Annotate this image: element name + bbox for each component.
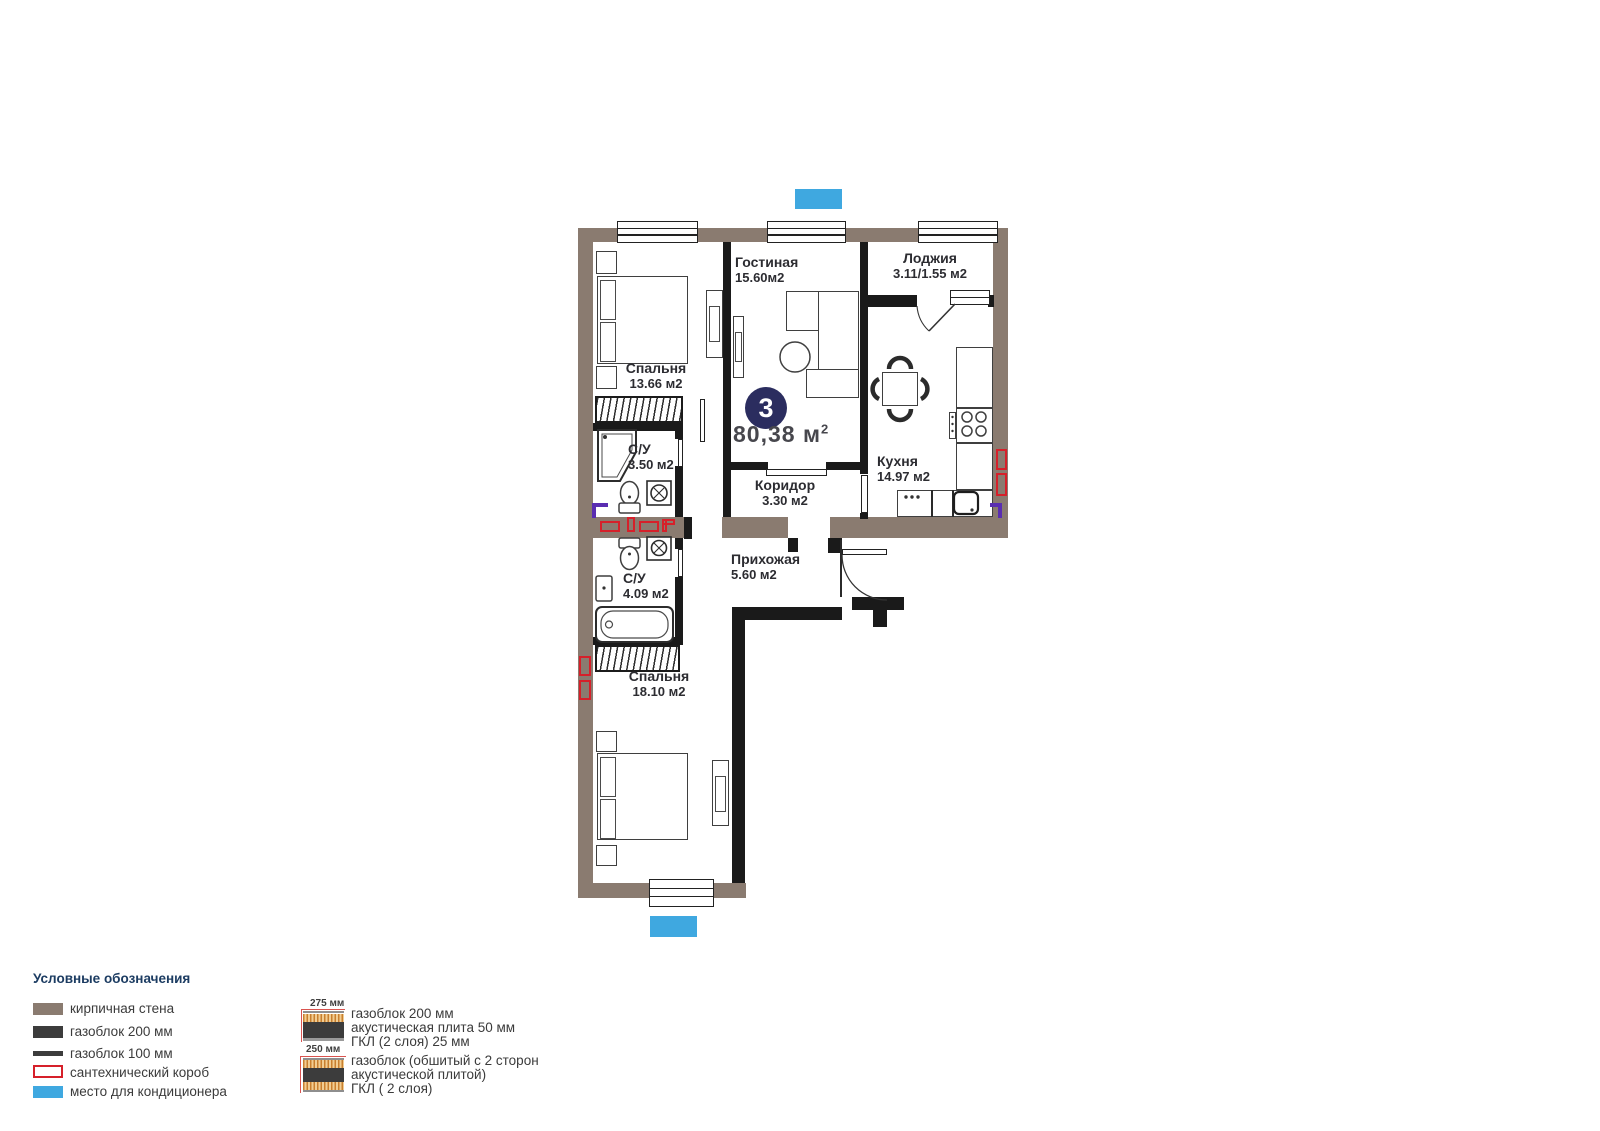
wall-block-jamb-1 [684,517,692,539]
legend-item-label: сантехнический короб [70,1065,209,1080]
washing-machine-symbol [647,537,671,560]
kitchen-counter [956,347,993,408]
legend-title: Условные обозначения [33,971,190,986]
wall-type-line: газоблок 200 мм [351,1006,454,1021]
room-label-bath1: С/У 3.50 м2 [628,441,674,473]
wardrobe-symbol [709,306,720,342]
wall-block-living-kitchen2 [860,513,868,519]
legend-swatch-brick [33,1003,63,1015]
nightstand-symbol [596,731,617,752]
door-leaf [678,439,683,467]
entrance-door-leaf [842,549,887,555]
room-name: Прихожая [731,551,800,567]
room-name: Коридор [743,477,827,493]
room-label-hall: Прихожая 5.60 м2 [731,551,800,583]
window [767,221,846,243]
wall-brick-left [578,228,593,898]
wall-brick-band-c [830,517,1008,538]
counter-divider [952,490,954,517]
wall-block-living-kitchen [860,242,868,474]
pillow-symbol [600,322,616,362]
room-name: Кухня [877,453,930,469]
bathtub-drain [606,621,613,628]
wall-block-bath2-right-a [675,538,683,549]
wall-type-swatch-275 [303,1011,344,1041]
wardrobe-hatch-symbol [595,396,683,423]
room-label-loggia: Лоджия 3.11/1.55 м2 [880,250,980,282]
floor-plan-page: Гостиная 15.60м2 Лоджия 3.11/1.55 м2 Спа… [0,0,1600,1131]
door-leaf [678,549,683,577]
wall-block-jamb-2 [788,538,798,552]
sanitary-box-marker [579,680,591,700]
loggia-door-swing [917,304,955,331]
legend-item-label: газоблок 200 мм [70,1024,173,1039]
room-label-bath2: С/У 4.09 м2 [623,570,669,602]
wall-block-bath1-right-b [675,466,683,517]
door-leaf [700,399,705,442]
window [649,879,714,907]
room-name: С/У [623,570,669,586]
shower-drain [603,435,607,439]
wall-brick-band-b [722,517,788,538]
round-table-symbol [780,342,810,372]
kitchen-counter [949,412,956,439]
sanitary-box-marker [996,473,1007,496]
door-leaf [766,469,827,476]
pillow-symbol [600,280,616,320]
ac-unit-marker [650,916,697,937]
wall-block-bath2-bottom [593,637,683,645]
room-area: 3.50 м2 [628,457,674,473]
room-area: 14.97 м2 [877,469,930,485]
wall-block-bath2-right-b [675,577,683,637]
total-area-value: 80,38 м [733,421,821,447]
legend-swatch-ac [33,1086,63,1098]
apartment-number: 3 [758,393,773,424]
sink-drain [602,586,605,589]
wall-type-dimension: 275 мм [310,998,344,1009]
purple-corner-marker [592,503,596,518]
loggia-window [950,290,990,305]
purple-corner-marker [998,503,1002,518]
legend-item-label: место для кондиционера [70,1084,227,1099]
room-label-bedroom2: Спальня 18.10 м2 [616,668,702,700]
room-label-corridor: Коридор 3.30 м2 [743,477,827,509]
room-name: Лоджия [880,250,980,266]
nightstand-symbol [596,845,617,866]
room-area: 18.10 м2 [616,684,702,700]
kitchen-counter [956,443,993,490]
wall-type-line: газоблок (обшитый с 2 сторон [351,1053,539,1068]
room-label-bedroom1: Спальня 13.66 м2 [613,360,699,392]
wall-type-line: акустическая плита 50 мм [351,1020,515,1035]
sanitary-box-marker [600,521,620,532]
toilet-dot [628,553,631,556]
legend-item-label: кирпичная стена [70,1001,174,1016]
dining-table-symbol [882,372,918,406]
legend-swatch-sanitary [33,1065,63,1078]
toilet-symbol [621,547,639,570]
counter-divider [931,490,933,517]
room-name: Спальня [613,360,699,376]
legend-swatch-block200 [33,1026,63,1038]
bathtub-symbol-inner [601,611,668,638]
wardrobe-symbol [715,776,726,812]
pillow-symbol [600,799,616,839]
washing-machine-symbol [647,481,671,505]
window [918,221,998,243]
room-area: 3.11/1.55 м2 [880,266,980,282]
toilet-dot [628,496,631,499]
sanitary-box-marker [627,517,635,532]
legend-swatch-block100 [33,1051,63,1056]
room-label-living: Гостиная 15.60м2 [735,254,798,286]
wall-block-divider [723,242,731,517]
ac-unit-marker [795,189,842,209]
sink-symbol [596,576,612,601]
sanitary-box-marker [662,519,667,532]
room-label-kitchen: Кухня 14.97 м2 [877,453,930,485]
room-area: 3.30 м2 [743,493,827,509]
room-area: 15.60м2 [735,270,798,286]
wall-block-bedroom2-right [732,607,745,883]
wall-type-line: акустической плитой) [351,1067,486,1082]
sofa-symbol [806,369,859,398]
legend-item-label: газоблок 100 мм [70,1046,173,1061]
wall-type-swatch-250 [303,1058,344,1092]
sanitary-box-marker [996,449,1007,470]
toilet-symbol [621,482,639,505]
room-area: 13.66 м2 [613,376,699,392]
wall-type-dimension: 250 мм [306,1044,340,1055]
room-name: Спальня [616,668,702,684]
wall-block-entry-stub [873,597,887,627]
door-leaf [861,475,868,513]
nightstand-symbol [596,251,617,274]
wall-block-bath1-top [593,423,683,431]
pillow-symbol [600,757,616,797]
room-area: 5.60 м2 [731,567,800,583]
sanitary-box-marker [579,656,591,676]
window [617,221,698,243]
room-area: 4.09 м2 [623,586,669,602]
sanitary-box-marker [639,521,659,532]
total-area-sup: 2 [821,421,829,436]
total-area-label: 80,38 м2 [733,421,829,448]
wall-type-line: ГКЛ (2 слоя) 25 мм [351,1034,470,1049]
toilet-tank [619,538,640,548]
stove-symbol [956,408,993,443]
wall-block-loggia-bottom [866,295,917,307]
wall-block-living-bottom-l [731,462,768,470]
room-name: Гостиная [735,254,798,270]
entrance-door-swing [842,555,887,600]
wall-block-bath1-right-a [675,423,683,439]
kitchen-counter [897,490,993,517]
wall-type-line: ГКЛ ( 2 слоя) [351,1081,432,1096]
tv-stand-symbol [735,332,742,362]
wall-block-living-bottom-r [826,462,860,470]
toilet-tank [619,503,640,513]
room-name: С/У [628,441,674,457]
wall-block-hall-bottom [744,607,842,620]
